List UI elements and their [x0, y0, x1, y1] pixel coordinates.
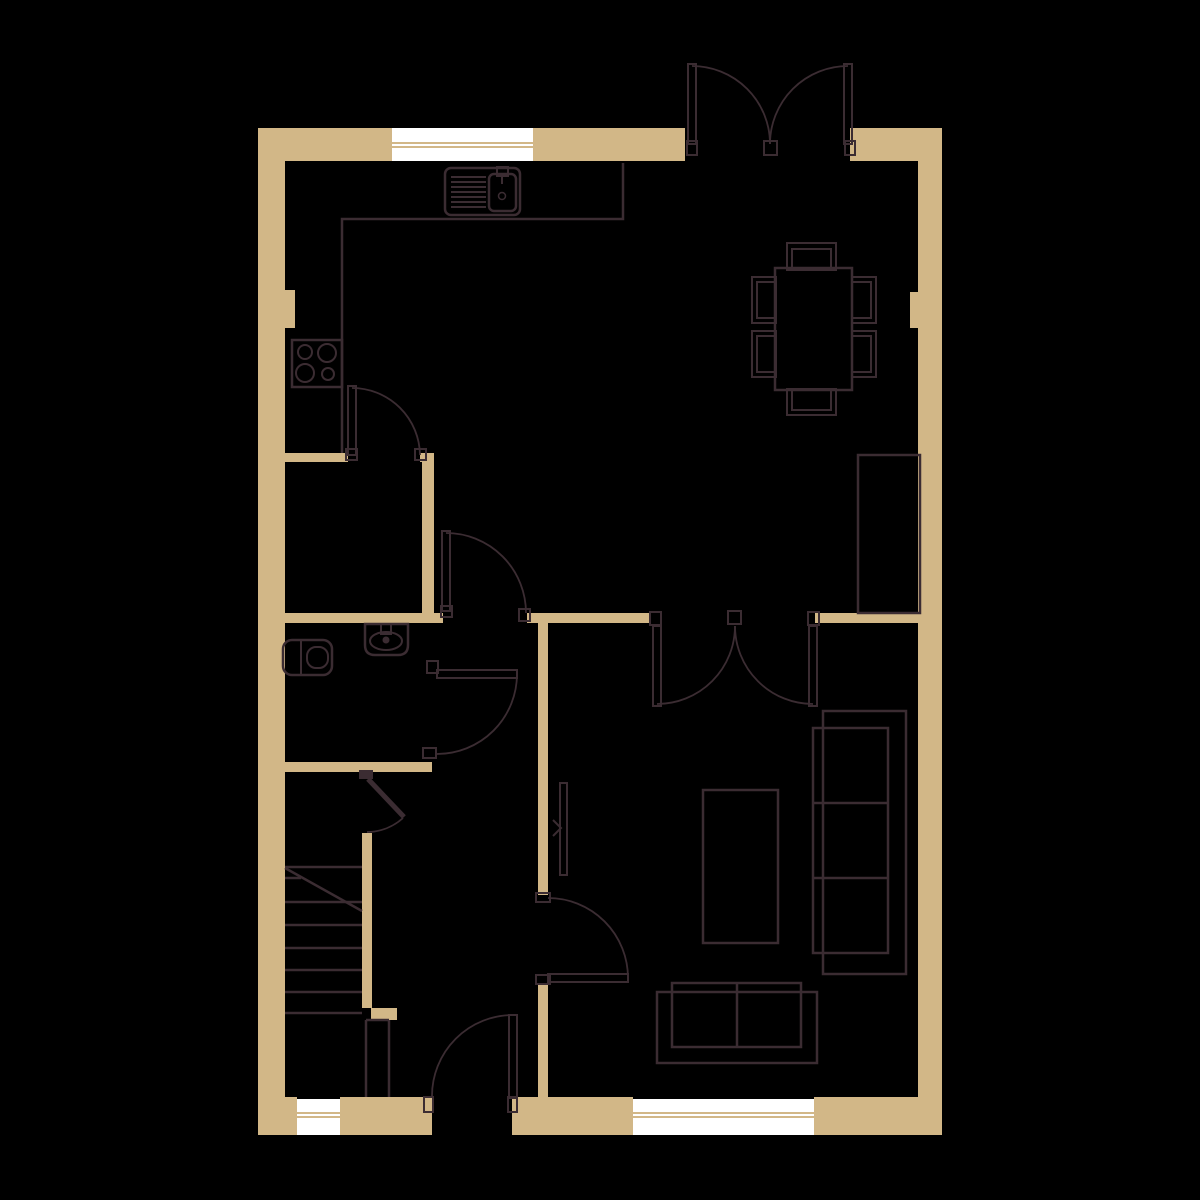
- kitchen-door-arc: [352, 388, 420, 455]
- understairs-door-arc: [367, 818, 403, 832]
- wall-kitchen-vert: [422, 462, 434, 615]
- wc-door-leaf: [437, 670, 517, 678]
- french-door-left-leaf: [688, 64, 696, 144]
- wall-mid-2: [527, 613, 650, 623]
- hob-burner-3: [296, 364, 314, 382]
- front-door-arc: [432, 1015, 513, 1096]
- floor-plan: [0, 0, 1200, 1200]
- kitchen-door-leaf: [348, 386, 356, 455]
- hob-burner-2: [318, 344, 336, 362]
- chair-bottom-inner: [792, 389, 831, 410]
- living-door-leaf: [548, 974, 628, 982]
- chair-left-top-outer: [752, 277, 776, 323]
- chair-left-bot-inner: [757, 336, 776, 372]
- window-top-bar-1: [392, 142, 533, 144]
- pillar-right: [910, 292, 942, 328]
- wall-stairs: [362, 833, 372, 1008]
- sofa-3seat-back: [823, 711, 906, 974]
- stair-break-diagonal: [285, 868, 362, 911]
- window-bl-bar-2: [297, 1116, 340, 1118]
- hob-burner-1: [298, 345, 312, 359]
- french-door-right-arc: [770, 66, 848, 144]
- wall-bottom-4: [814, 1097, 942, 1135]
- chair-right-top-inner: [852, 282, 871, 318]
- double-door-left-leaf: [653, 626, 661, 706]
- coffee-table: [703, 790, 778, 943]
- understairs-door-jamb: [359, 770, 373, 779]
- window-top: [392, 128, 533, 161]
- wall-kitchen: [258, 453, 348, 462]
- wall-newel: [371, 1008, 397, 1020]
- wall-hall-upper: [538, 623, 548, 895]
- tv-unit: [858, 455, 920, 613]
- dining-table: [775, 268, 852, 390]
- chair-right-top-outer: [852, 277, 876, 323]
- wall-mid-1: [258, 613, 443, 623]
- chair-bottom-outer: [787, 389, 836, 415]
- pillar-left: [258, 290, 295, 328]
- stair-railing: [366, 1020, 389, 1097]
- french-door-left-arc: [692, 66, 770, 144]
- wall-bottom-3: [512, 1097, 633, 1135]
- chair-top-outer: [787, 243, 836, 270]
- double-door-left-arc: [657, 626, 735, 704]
- hall-door-leaf: [442, 531, 450, 611]
- living-door-arc: [548, 898, 628, 978]
- wall-top-right: [850, 128, 942, 161]
- wc-door-arc: [437, 674, 517, 754]
- window-br-bar-2: [633, 1116, 814, 1118]
- double-door-jamb-left: [650, 612, 661, 625]
- chair-left-top-inner: [757, 282, 776, 318]
- floor-plan-canvas: [0, 0, 1200, 1200]
- front-door-leaf: [509, 1015, 517, 1098]
- wall-mid-3: [815, 613, 920, 623]
- toilet-bowl: [307, 647, 328, 668]
- window-top-bar-2: [392, 146, 533, 148]
- double-door-right-leaf: [809, 626, 817, 706]
- window-br-bar-1: [633, 1112, 814, 1114]
- basin-tap-knob: [383, 637, 390, 644]
- wall-wc-bottom: [258, 762, 432, 772]
- hall-door-arc: [446, 533, 526, 613]
- double-door-right-arc: [735, 626, 813, 704]
- wall-bottom-2: [340, 1097, 432, 1135]
- understairs-door-leaf: [368, 779, 404, 817]
- wc-door-jamb-2: [423, 748, 436, 758]
- chair-left-bot-outer: [752, 331, 776, 377]
- chair-right-bot-inner: [852, 336, 871, 372]
- wall-hall-lower: [538, 983, 548, 1097]
- sink-drainer-lines: [451, 177, 486, 207]
- double-door-jamb-mid: [728, 611, 741, 624]
- sink-drain: [499, 193, 506, 200]
- hob-burner-4: [322, 368, 334, 380]
- wall-bottom-1: [258, 1097, 297, 1135]
- chair-right-bot-outer: [852, 331, 876, 377]
- window-bl-bar-1: [297, 1112, 340, 1114]
